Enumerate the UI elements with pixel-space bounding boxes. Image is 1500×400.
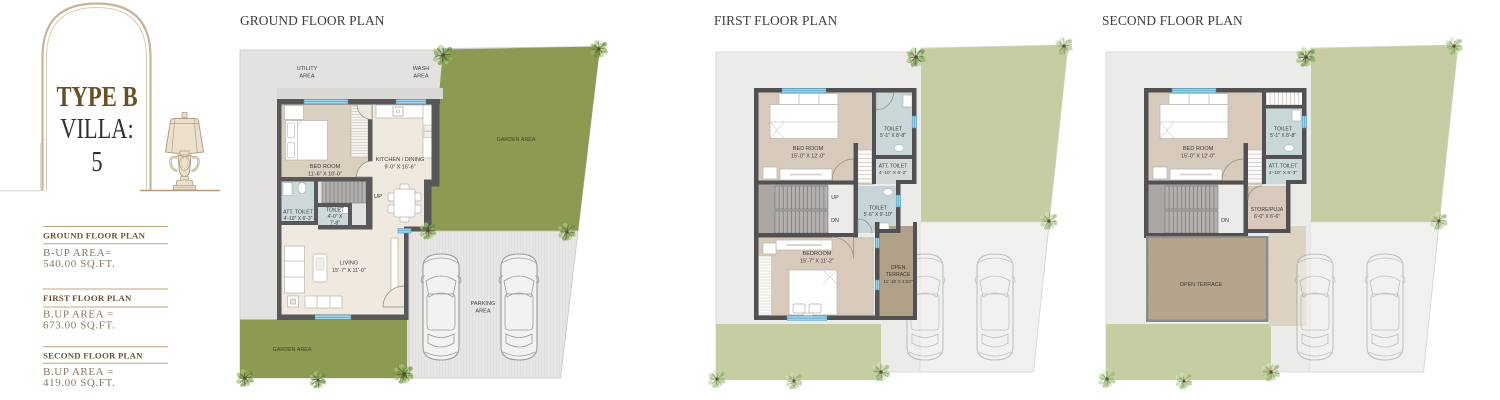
svg-text:6'-0" X 6'-6": 6'-0" X 6'-6": [1254, 214, 1280, 220]
svg-text:5: 5: [91, 147, 102, 178]
svg-text:DN: DN: [831, 218, 839, 224]
svg-text:UP: UP: [831, 195, 839, 201]
svg-text:4'-10" X 6'-3": 4'-10" X 6'-3": [1269, 170, 1297, 176]
svg-text:TYPE B: TYPE B: [56, 80, 137, 112]
svg-text:GARDEN AREA: GARDEN AREA: [273, 347, 312, 353]
svg-text:BED ROOM: BED ROOM: [310, 164, 341, 170]
svg-text:4'-10" X 6'-2": 4'-10" X 6'-2": [879, 170, 907, 176]
svg-text:9'-0" X 16'-6": 9'-0" X 16'-6": [384, 165, 415, 171]
svg-text:TOILET: TOILET: [1274, 127, 1293, 133]
svg-text:WASH: WASH: [413, 66, 430, 72]
svg-text:ATT. TOILET: ATT. TOILET: [283, 210, 314, 216]
svg-text:419.00 SQ.FT.: 419.00 SQ.FT.: [43, 377, 115, 389]
svg-text:4'-0" X: 4'-0" X: [328, 214, 343, 220]
svg-text:540.00 SQ.FT.: 540.00 SQ.FT.: [43, 258, 115, 270]
svg-text:BEDROOM: BEDROOM: [803, 251, 832, 257]
svg-text:LIVING: LIVING: [340, 261, 358, 267]
svg-text:11'-10 X 4'10": 11'-10 X 4'10": [883, 279, 913, 285]
svg-text:BED ROOM: BED ROOM: [793, 146, 824, 152]
svg-text:TOILET: TOILET: [326, 208, 345, 214]
svg-text:BED ROOM: BED ROOM: [1183, 146, 1214, 152]
svg-text:15'-0" X 12'-0": 15'-0" X 12'-0": [791, 154, 825, 160]
svg-text:AREA: AREA: [299, 74, 315, 80]
svg-text:AREA: AREA: [413, 74, 429, 80]
svg-text:5'-1" X 8'-8": 5'-1" X 8'-8": [880, 133, 906, 139]
svg-text:DN: DN: [1221, 218, 1229, 224]
svg-text:VILLA:: VILLA:: [60, 114, 133, 145]
svg-text:GROUND FLOOR PLAN: GROUND FLOOR PLAN: [240, 13, 385, 28]
svg-text:STORE/PUJA: STORE/PUJA: [1251, 207, 1284, 213]
svg-text:SECOND FLOOR PLAN: SECOND FLOOR PLAN: [1102, 13, 1243, 28]
svg-text:11'-6" X 10'-0": 11'-6" X 10'-0": [308, 172, 342, 178]
svg-text:ATT. TOILET: ATT. TOILET: [879, 164, 908, 170]
svg-text:15'-7" X 11'-0": 15'-7" X 11'-0": [332, 268, 366, 274]
svg-text:ATT. TOILET: ATT. TOILET: [1269, 164, 1298, 170]
svg-text:FIRST FLOOR PLAN: FIRST FLOOR PLAN: [714, 13, 838, 28]
svg-text:AREA: AREA: [475, 309, 491, 315]
svg-text:OPEN: OPEN: [891, 265, 906, 271]
svg-text:PARKING: PARKING: [471, 301, 496, 307]
svg-text:15'-0" X 12'-0": 15'-0" X 12'-0": [1181, 154, 1215, 160]
svg-text:TOILET: TOILET: [869, 206, 888, 212]
svg-text:GROUND FLOOR PLAN: GROUND FLOOR PLAN: [43, 231, 146, 241]
svg-text:5'-1" X 8'-8": 5'-1" X 8'-8": [1270, 133, 1296, 139]
svg-text:TOILET: TOILET: [884, 127, 903, 133]
svg-text:673.00 SQ.FT.: 673.00 SQ.FT.: [43, 320, 115, 332]
svg-text:15'-7" X 11'-2": 15'-7" X 11'-2": [800, 259, 834, 265]
svg-text:OPEN TERRACE: OPEN TERRACE: [1180, 282, 1223, 288]
svg-text:GARDEN AREA: GARDEN AREA: [497, 137, 536, 143]
svg-text:UP: UP: [374, 194, 382, 200]
svg-text:FIRST FLOOR PLAN: FIRST FLOOR PLAN: [43, 293, 132, 303]
svg-text:KITCHEN / DINING: KITCHEN / DINING: [376, 157, 425, 163]
svg-text:5'-6" X 9'-10": 5'-6" X 9'-10": [864, 212, 893, 218]
svg-text:SECOND FLOOR PLAN: SECOND FLOOR PLAN: [43, 350, 143, 360]
svg-text:UTILITY: UTILITY: [297, 66, 318, 72]
svg-text:TERRACE: TERRACE: [886, 272, 911, 278]
